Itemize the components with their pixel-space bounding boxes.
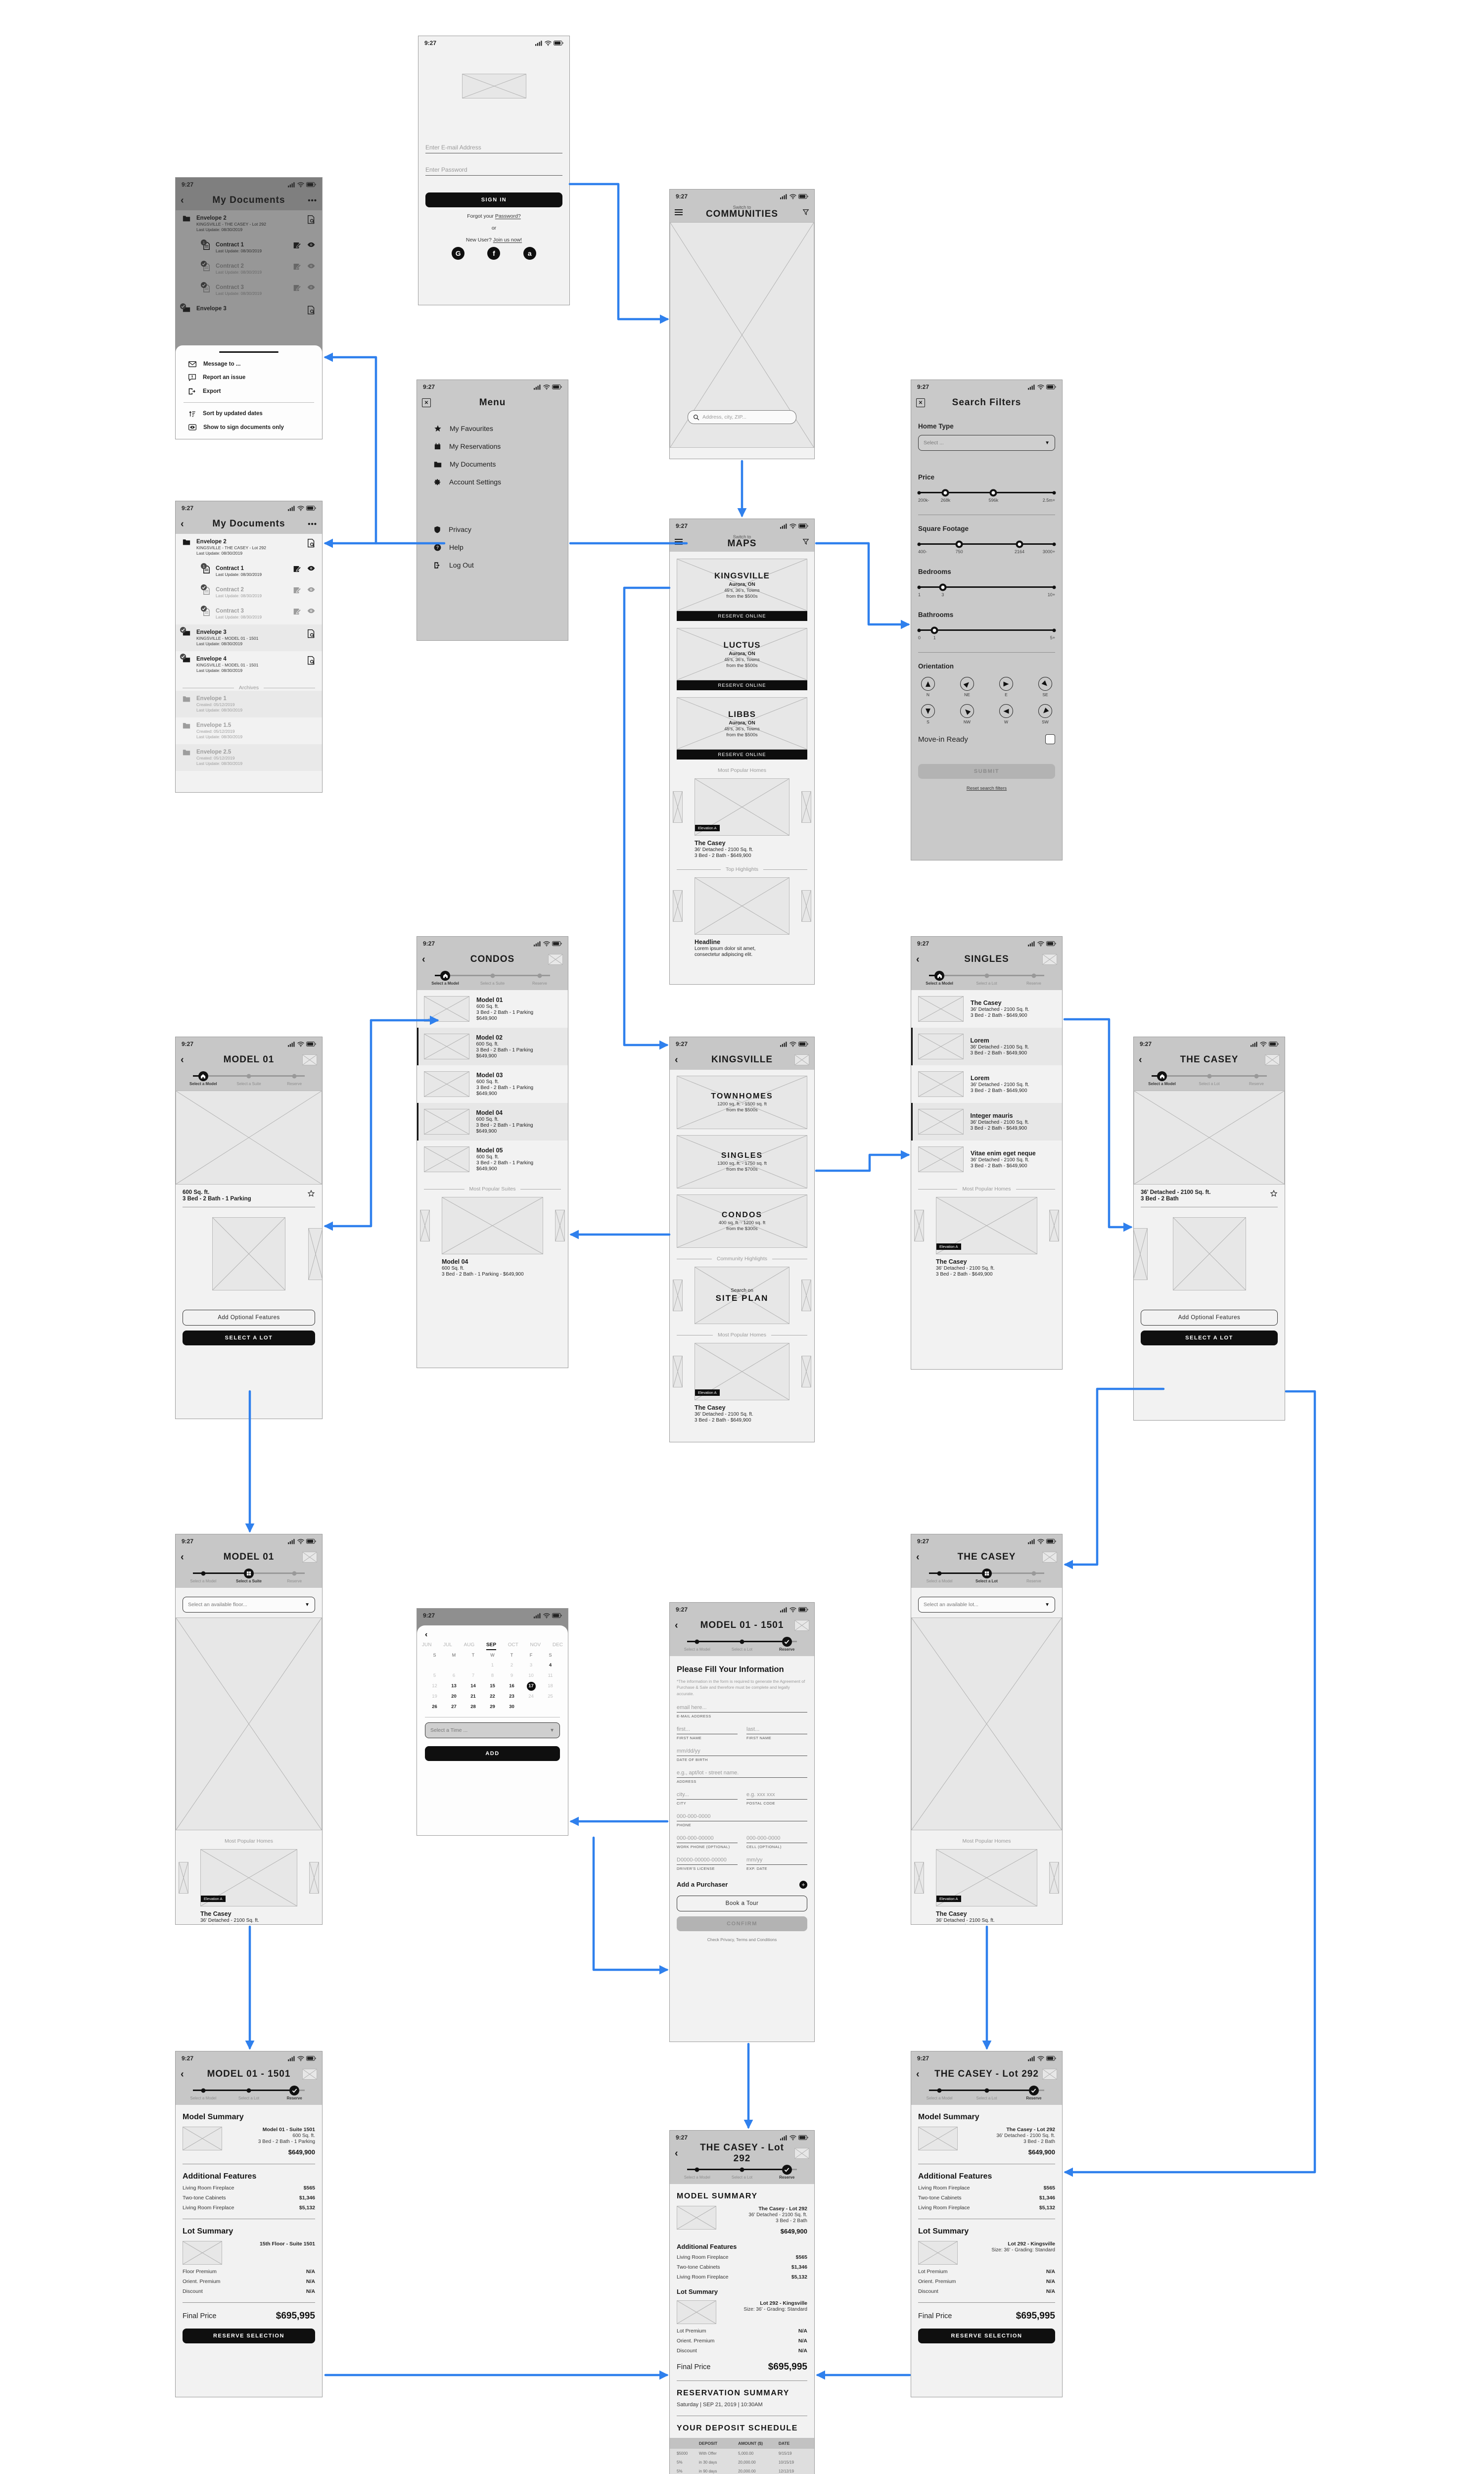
sign-in-button[interactable]: SIGN IN [425, 192, 562, 207]
favourite-star-icon[interactable] [1270, 1189, 1278, 1199]
caption-line: 36' Detached - 2100 Sq. ft. [695, 847, 807, 853]
header-thumbnail[interactable] [302, 1552, 317, 1563]
compass-icon [1038, 704, 1052, 718]
summary-row: Living Room Fireplace$565 [918, 2185, 1055, 2191]
slider-tick-label: 1 [918, 592, 921, 597]
orientation-n-button[interactable]: N [921, 677, 935, 697]
view-document-icon[interactable] [307, 566, 315, 571]
header-thumbnail[interactable] [794, 1620, 809, 1631]
model-list-item[interactable]: Lorem36' Detached - 2100 Sq. ft.3 Bed - … [911, 1028, 1062, 1065]
month-tab-oct[interactable]: OCT [508, 1642, 518, 1650]
menu-item-my-documents[interactable]: My Documents [424, 455, 561, 473]
field-input[interactable]: D0000-00000-00000 [677, 1857, 738, 1865]
back-button[interactable]: ‹ [916, 2069, 920, 2079]
calendar-day[interactable]: 15 [483, 1681, 502, 1691]
screen-long: 9:27‹THE CASEY - Lot 292Select a ModelSe… [669, 2130, 815, 2474]
step-dot-1 [934, 971, 944, 981]
status-bar: 9:27 [176, 501, 322, 514]
favourite-star-icon[interactable] [307, 1189, 315, 1199]
add-optional-features-button[interactable]: Add Optional Features [1141, 1310, 1278, 1326]
menu-item-my-favourites[interactable]: My Favourites [424, 420, 561, 437]
back-button[interactable]: ‹ [1139, 1055, 1142, 1065]
header-thumbnail[interactable] [1042, 2069, 1057, 2080]
table-cell: 5% [677, 2460, 699, 2465]
filter-icon[interactable] [802, 209, 809, 216]
community-line: from the $500s [726, 594, 757, 599]
table-cell: 10/15/19 [779, 2460, 807, 2465]
status-time: 9:27 [424, 40, 436, 47]
calendar-day[interactable]: 3 [521, 1660, 541, 1670]
summary-price: $649,900 [722, 2228, 807, 2235]
model-thumbnail [918, 1071, 964, 1097]
field-input[interactable]: e.g., apt/lot - street name. [677, 1770, 807, 1778]
back-button[interactable]: ‹ [675, 2148, 678, 2158]
sign-document-icon[interactable] [293, 608, 301, 615]
elevation-tag: Elevation A [201, 1896, 226, 1902]
step-dot-3 [1029, 2086, 1039, 2095]
menu-icon[interactable] [675, 539, 683, 545]
status-icons [780, 1607, 808, 1613]
summary-row-label: Two-tone Cabinets [918, 2195, 962, 2201]
orientation-sw-button[interactable]: SW [1038, 704, 1052, 724]
back-button[interactable]: ‹ [675, 1620, 678, 1630]
model-list-item[interactable]: Vitae enim eget neque36' Detached - 2100… [911, 1141, 1062, 1178]
calendar-day[interactable]: 14 [464, 1681, 483, 1691]
envelope-subtitle: Created: 05/12/2019 [196, 702, 315, 707]
add-button[interactable]: ADD [425, 1746, 560, 1761]
orientation-s-button[interactable]: S [921, 704, 935, 724]
menu-item-account-settings[interactable]: Account Settings [424, 473, 561, 491]
model-detail: 3 Bed - 2 Bath - $649,900 [971, 1050, 1029, 1056]
facebook-signin-button[interactable]: f [487, 247, 500, 260]
caption-line: 3 Bed - 2 Bath - $649,900 [200, 1924, 315, 1925]
signal-icon [1028, 2056, 1035, 2061]
home-step-icon [443, 973, 448, 978]
progress-stepper: Select a ModelSelect a LotReserve [921, 969, 1052, 990]
search-placeholder: Address, city, ZIP... [702, 414, 746, 420]
sheet-item-export[interactable]: Export [176, 384, 322, 398]
back-button[interactable]: ‹ [675, 1055, 678, 1065]
step-label: Reserve [779, 1647, 794, 1652]
signal-icon [288, 1539, 295, 1544]
deposit-schedule-table: DEPOSITAMOUNT ($)DATE$5000With Offer5,00… [670, 2438, 814, 2474]
field-input[interactable]: email here... [677, 1705, 807, 1713]
slider-handle[interactable] [931, 626, 938, 634]
step-label: Select a Model [926, 981, 953, 986]
community-card[interactable]: KINGSVILLEAurora, ON45's, 36's, Townsfro… [677, 559, 807, 621]
month-tab-dec[interactable]: DEC [553, 1642, 563, 1650]
book-a-tour-button[interactable]: Book a Tour [677, 1896, 807, 1911]
slider-tick-label: 2164 [1015, 549, 1024, 554]
status-icons [535, 41, 563, 46]
model-list-item[interactable]: Model 01600 Sq. ft.3 Bed - 2 Bath - 1 Pa… [417, 990, 568, 1028]
slider-handle[interactable] [939, 583, 946, 591]
caption-line: 36' Detached - 2100 Sq. ft. [936, 1918, 1055, 1923]
filter-icon[interactable] [802, 538, 809, 545]
wifi-icon [545, 41, 552, 46]
community-line: from the $500s [726, 663, 757, 668]
select-a-lot-button[interactable]: SELECT A LOT [1141, 1331, 1278, 1345]
sheet-handle[interactable] [219, 351, 278, 353]
step-dot-2 [740, 2167, 744, 2172]
home-type-line: 1200 sq. ft. - 1500 sq. ft [717, 1101, 767, 1107]
slider-handle[interactable] [942, 489, 949, 496]
summary-row: Living Room Fireplace$565 [183, 2185, 315, 2191]
divider [677, 2380, 807, 2381]
model-detail: 600 Sq. ft. [476, 1117, 533, 1122]
move-in-ready-checkbox[interactable] [1045, 734, 1055, 744]
envelope-subtitle: KINGSVILLE - THE CASEY - Lot 292 [196, 545, 301, 550]
home-type-card[interactable]: TOWNHOMES1200 sq. ft. - 1500 sq. ftfrom … [677, 1076, 807, 1129]
close-icon[interactable]: ✕ [422, 398, 431, 407]
reservation-datetime: Saturday | SEP 21, 2019 | 10:30AM [677, 2402, 807, 2408]
table-cell: 5,000.00 [738, 2451, 779, 2456]
battery-icon [798, 523, 808, 528]
calendar-day[interactable]: 18 [541, 1681, 560, 1691]
time-select[interactable]: Select a Time ...▼ [425, 1722, 560, 1738]
carousel-caption: HeadlineLorem ipsum dolor sit amet,conse… [695, 939, 807, 957]
calendar-day[interactable]: 10 [521, 1670, 541, 1681]
contract-title: Contract 3 [216, 608, 287, 614]
orientation-w-button[interactable]: W [999, 704, 1013, 724]
back-button[interactable]: ‹ [181, 2069, 184, 2079]
elevation-tag: Elevation A [936, 1896, 961, 1902]
section-divider: Community Highlights [677, 1256, 807, 1262]
divider [183, 2219, 315, 2219]
month-tab-nov[interactable]: NOV [530, 1642, 541, 1650]
summary-line: 3 Bed - 2 Bath - 1 Parking [228, 2139, 315, 2144]
slider-handle[interactable] [956, 540, 963, 548]
model-list-item[interactable]: Model 04600 Sq. ft.3 Bed - 2 Bath - 1 Pa… [417, 1103, 568, 1141]
field-input[interactable]: mm/dd/yy [677, 1748, 807, 1756]
header-thumbnail[interactable] [794, 2148, 809, 2159]
link-text[interactable]: Join us now! [493, 237, 522, 243]
summary-row-value: N/A [306, 2279, 315, 2284]
check-badge [201, 584, 207, 590]
summary-row-label: Living Room Fireplace [183, 2185, 234, 2191]
caption-line: The Casey [936, 1258, 1055, 1265]
menu-item-log-out[interactable]: Log Out [424, 556, 561, 574]
calendar-day[interactable]: 27 [444, 1702, 464, 1712]
model-list-item[interactable]: Integer mauris36' Detached - 2100 Sq. ft… [911, 1103, 1062, 1141]
step-label: Select a Model [190, 2096, 216, 2100]
reserve-online-button[interactable]: RESERVE ONLINE [677, 750, 807, 760]
calendar-day[interactable]: 4 [541, 1660, 560, 1670]
compass-icon [960, 677, 974, 691]
menu-item-label: My Reservations [449, 442, 501, 450]
back-button[interactable]: ‹ [181, 1552, 184, 1562]
community-card[interactable]: LUCTUSAurora, ON45's, 36's, Townsfrom th… [677, 628, 807, 690]
step-label: Select a Suite [236, 1579, 262, 1583]
join-us-link[interactable]: New User? Join us now! [425, 237, 562, 243]
calendar-day[interactable]: 11 [541, 1670, 560, 1681]
wifi-icon [789, 1042, 796, 1047]
carousel-next-thumb [801, 1280, 811, 1311]
field-input[interactable]: city... [677, 1792, 738, 1800]
model-detail: 3 Bed - 2 Bath - 1 Parking [476, 1160, 533, 1166]
flow-arrow-16 [594, 1838, 667, 1970]
status-icons [1251, 1042, 1279, 1047]
select-a-lot-button[interactable]: SELECT A LOT [183, 1331, 315, 1345]
view-document-icon[interactable] [307, 608, 315, 614]
calendar-day[interactable]: 26 [425, 1702, 444, 1712]
community-card[interactable]: LIBBSAurora, ON45's, 36's, Townsfrom the… [677, 697, 807, 760]
orientation-ne-button[interactable]: NE [960, 677, 974, 697]
header-thumbnail[interactable] [1265, 1054, 1280, 1065]
field-input[interactable]: 000-000-0000 [746, 1835, 807, 1843]
home-type-select[interactable]: Select ...▼ [918, 435, 1055, 451]
orientation-se-button[interactable]: SE [1038, 677, 1052, 697]
calendar-day[interactable]: 13 [444, 1681, 464, 1691]
reset-filters-link[interactable]: Reset search filters [918, 786, 1055, 791]
home-type-card[interactable]: CONDOS400 sq. ft. - 1200 sq. ftfrom the … [677, 1194, 807, 1248]
envelope-subtitle: Created: 05/12/2019 [196, 729, 315, 734]
summary-row-label: Floor Premium [183, 2269, 217, 2275]
slider-handle[interactable] [1016, 540, 1023, 548]
step-dot-1 [695, 2167, 699, 2172]
orientation-nw-button[interactable]: NW [960, 704, 974, 724]
calendar-day[interactable]: 29 [483, 1702, 502, 1712]
calendar-day[interactable]: 1 [483, 1660, 502, 1670]
summary-heading: Model Summary [918, 2113, 1055, 2122]
calendar-day[interactable]: 30 [502, 1702, 521, 1712]
apple-signin-button[interactable]: a [523, 247, 536, 260]
add-optional-features-button[interactable]: Add Optional Features [183, 1310, 315, 1326]
back-button[interactable]: ‹ [422, 954, 425, 964]
month-tab-jul[interactable]: JUL [443, 1642, 452, 1650]
google-signin-button[interactable]: G [452, 247, 464, 260]
screen-form: 9:27‹MODEL 01 - 1501Select a ModelSelect… [669, 1602, 815, 2042]
back-button[interactable]: ‹ [425, 1630, 560, 1639]
status-time: 9:27 [676, 2134, 688, 2141]
flow-arrow-7 [816, 1155, 908, 1171]
caption-line: 3 Bed - 2 Bath - $649,900 [936, 1272, 1055, 1277]
selected-day[interactable]: 17 [527, 1682, 536, 1691]
reserve-selection-button[interactable]: RESERVE SELECTION [918, 2329, 1055, 2343]
flow-arrow-11 [1065, 1019, 1131, 1227]
field-input[interactable]: 000-000-0000 [677, 1813, 807, 1821]
field-input[interactable]: mm/yy [746, 1857, 807, 1865]
step-label: Reserve [287, 2096, 302, 2100]
community-line: 45's, 36's, Towns [724, 657, 760, 663]
calendar-day[interactable]: 21 [464, 1691, 483, 1702]
calendar-day[interactable]: 19 [425, 1691, 444, 1702]
screen-header: ‹CONDOS [417, 950, 568, 969]
calendar-day[interactable]: 9 [502, 1670, 521, 1681]
orientation-label: NE [960, 692, 974, 697]
status-time: 9:27 [1140, 1041, 1152, 1047]
progress-stepper: Select a ModelSelect a SuiteReserve [185, 1070, 312, 1091]
month-tab-aug[interactable]: AUG [464, 1642, 475, 1650]
screen-header: ‹MODEL 01 - 1501 [176, 2064, 322, 2084]
header-thumbnail[interactable] [1042, 954, 1057, 965]
calendar-day [464, 1660, 483, 1670]
floor-select[interactable]: Select an available floor...▼ [183, 1597, 315, 1613]
view-document-icon[interactable] [307, 587, 315, 592]
model-thumbnail [424, 1109, 469, 1135]
header-thumbnail[interactable] [548, 954, 563, 965]
field-input[interactable]: 000-000-00000 [677, 1835, 738, 1843]
add-purchaser-icon[interactable]: + [799, 1881, 807, 1889]
month-tab-jun[interactable]: JUN [422, 1642, 431, 1650]
flow-arrow-14 [1066, 1391, 1315, 2172]
calendar-day[interactable]: 20 [444, 1691, 464, 1702]
contract-row[interactable]: Contract 3Last Update: 08/30/2019 [196, 603, 322, 624]
screen-header: ‹MODEL 01 - 1501 [670, 1616, 814, 1635]
sheet-item-show-to-sign-documents-only[interactable]: Show to sign documents only [176, 421, 322, 434]
model-list-item[interactable]: Model 02600 Sq. ft.3 Bed - 2 Bath - 1 Pa… [417, 1028, 568, 1065]
compass-icon [921, 677, 935, 691]
model-list-item[interactable]: Model 05600 Sq. ft.3 Bed - 2 Bath - 1 Pa… [417, 1141, 568, 1178]
sheet-item-report-an-issue[interactable]: Report an issue [176, 371, 322, 384]
envelope-row[interactable]: Envelope 1Created: 05/12/2019Last Update… [176, 691, 322, 717]
status-bar: 9:27 [670, 2131, 814, 2143]
battery-icon [552, 1613, 562, 1618]
model-list-item[interactable]: Lorem36' Detached - 2100 Sq. ft.3 Bed - … [911, 1065, 1062, 1103]
envelope-row[interactable]: Envelope 1.5Created: 05/12/2019Last Upda… [176, 717, 322, 744]
text-input[interactable]: Enter Password [425, 166, 562, 176]
signal-icon [534, 941, 541, 947]
compass-icon [999, 704, 1013, 718]
reserve-online-button[interactable]: RESERVE ONLINE [677, 680, 807, 690]
reserve-selection-button[interactable]: RESERVE SELECTION [183, 2329, 315, 2343]
back-button[interactable]: ‹ [916, 954, 920, 964]
field-input[interactable]: e.g. xxx xxx [746, 1792, 807, 1800]
battery-icon [552, 384, 562, 389]
screen-title: MODEL 01 [197, 1054, 300, 1065]
signal-icon [288, 1042, 295, 1047]
preview-document-icon[interactable] [307, 629, 315, 638]
section-label: Orientation [918, 663, 1055, 670]
calendar-day[interactable]: 12 [425, 1681, 444, 1691]
summary-row-label: Living Room Fireplace [183, 2205, 234, 2211]
community-line: 45's, 36's, Towns [724, 726, 760, 732]
menu-item-my-reservations[interactable]: My Reservations [424, 437, 561, 455]
envelope-row[interactable]: Envelope 2.5Created: 05/12/2019Last Upda… [176, 744, 322, 771]
calendar-day[interactable]: 6 [444, 1670, 464, 1681]
calendar-week-row: 19202122232425 [425, 1691, 560, 1702]
close-icon[interactable]: ✕ [916, 398, 925, 407]
header-thumbnail[interactable] [302, 2069, 317, 2080]
table-cell: $5000 [677, 2451, 699, 2456]
calendar-day[interactable]: 16 [502, 1681, 521, 1691]
more-options-icon[interactable]: ••• [308, 520, 317, 528]
status-time: 9:27 [423, 383, 435, 390]
export-icon [188, 388, 196, 395]
model-list-item[interactable]: Model 03600 Sq. ft.3 Bed - 2 Bath - 1 Pa… [417, 1065, 568, 1103]
grid-step-icon [246, 1571, 251, 1576]
summary-row: Two-tone Cabinets$1,346 [918, 2195, 1055, 2201]
calendar-day[interactable]: 23 [502, 1691, 521, 1702]
step-dot-1 [937, 1571, 942, 1575]
signal-icon [780, 523, 788, 529]
contract-row[interactable]: 1Contract 1Last Update: 08/30/2019 [196, 561, 322, 582]
envelope-row[interactable]: Envelope 4KINGSVILLE - MODEL 01 - 1501La… [176, 651, 322, 678]
envelope-row[interactable]: Envelope 2KINGSVILLE - THE CASEY - Lot 2… [176, 534, 322, 561]
envelope-row[interactable]: Envelope 3KINGSVILLE - MODEL 01 - 1501La… [176, 624, 322, 651]
back-button[interactable]: ‹ [181, 1055, 184, 1065]
orientation-label: SW [1038, 719, 1052, 724]
logout-icon [434, 562, 441, 569]
image-carousel: Elevation A [183, 1849, 315, 1906]
field-input[interactable]: first... [677, 1726, 738, 1734]
status-time: 9:27 [182, 2055, 193, 2062]
calendar-day[interactable]: 8 [483, 1670, 502, 1681]
confirm-button[interactable]: CONFIRM [677, 1916, 807, 1931]
search-input[interactable]: Address, city, ZIP... [688, 410, 796, 424]
folder-icon [183, 696, 190, 702]
submit-button[interactable]: SUBMIT [918, 764, 1055, 779]
field-label: FIRST NAME [746, 1736, 807, 1740]
sheet-item-label: Show to sign documents only [203, 425, 284, 430]
field-input[interactable]: last... [746, 1726, 807, 1734]
calendar-day[interactable]: 17 [521, 1681, 541, 1691]
model-list-item[interactable]: The Casey36' Detached - 2100 Sq. ft.3 Be… [911, 990, 1062, 1028]
sheet-item-message-to-[interactable]: Message to ... [176, 358, 322, 371]
calendar-day[interactable]: 5 [425, 1670, 444, 1681]
menu-item-help[interactable]: ?Help [424, 538, 561, 556]
header-thumbnail[interactable] [1042, 1552, 1057, 1563]
sheet-item-sort-by-updated-dates[interactable]: Sort by updated dates [176, 407, 322, 421]
back-button[interactable]: ‹ [181, 519, 184, 529]
preview-document-icon[interactable] [307, 539, 315, 548]
carousel-caption-big: SITE PLAN [716, 1293, 769, 1303]
lot-select[interactable]: Select an available lot...▼ [918, 1597, 1055, 1613]
screen-calendar: 9:27‹JUNJULAUGSEPOCTNOVDECSMTWTFS1234567… [417, 1608, 568, 1836]
link-text[interactable]: Password? [495, 213, 521, 219]
calendar-day[interactable]: 24 [521, 1691, 541, 1702]
reserve-online-button[interactable]: RESERVE ONLINE [677, 611, 807, 621]
form-field: first...FIRST NAME [677, 1726, 738, 1740]
back-button[interactable]: ‹ [916, 1552, 920, 1562]
calendar-day[interactable]: 2 [502, 1660, 521, 1670]
menu-icon[interactable] [675, 209, 683, 215]
header-thumbnail[interactable] [302, 1054, 317, 1065]
battery-icon [798, 1607, 808, 1612]
compass-icon [1038, 677, 1052, 691]
calendar-day[interactable]: 22 [483, 1691, 502, 1702]
month-tab-sep[interactable]: SEP [486, 1642, 496, 1650]
preview-document-icon[interactable] [307, 656, 315, 665]
signal-icon [534, 1613, 541, 1618]
forgot-password-link[interactable]: Forgot your Password? [425, 213, 562, 219]
calendar-day [541, 1702, 560, 1712]
caption-line: consectetur adipiscing elit. [695, 952, 807, 957]
calendar-week-row: 2627282930 [425, 1702, 560, 1712]
menu-item-privacy[interactable]: Privacy [424, 521, 561, 538]
home-type-card[interactable]: SINGLES1300 sq. ft. - 1750 sq. ftfrom th… [677, 1135, 807, 1189]
slider-handle[interactable] [990, 489, 997, 496]
calendar-day[interactable]: 25 [541, 1691, 560, 1702]
calendar-day[interactable]: 7 [464, 1670, 483, 1681]
orientation-e-button[interactable]: E [999, 677, 1013, 697]
status-icons [780, 523, 808, 529]
model-detail: $649,900 [476, 1166, 533, 1172]
summary-line: 36' Detached - 2100 Sq. ft. [722, 2212, 807, 2218]
contract-row[interactable]: Contract 2Last Update: 08/30/2019 [196, 582, 322, 603]
text-input[interactable]: Enter E-mail Address [425, 144, 562, 153]
header-thumbnail[interactable] [794, 1054, 809, 1065]
screen-title: MAPS [692, 538, 792, 549]
summary-thumbnail [677, 2206, 716, 2230]
sign-document-icon[interactable] [293, 587, 301, 594]
step-label: Reserve [779, 2175, 794, 2180]
slider-tick-label: 5+ [1050, 635, 1055, 640]
check-step-icon [784, 1639, 789, 1644]
calendar-day[interactable]: 28 [464, 1702, 483, 1712]
sign-document-icon[interactable] [293, 566, 301, 572]
step-dot-1 [201, 1571, 205, 1575]
